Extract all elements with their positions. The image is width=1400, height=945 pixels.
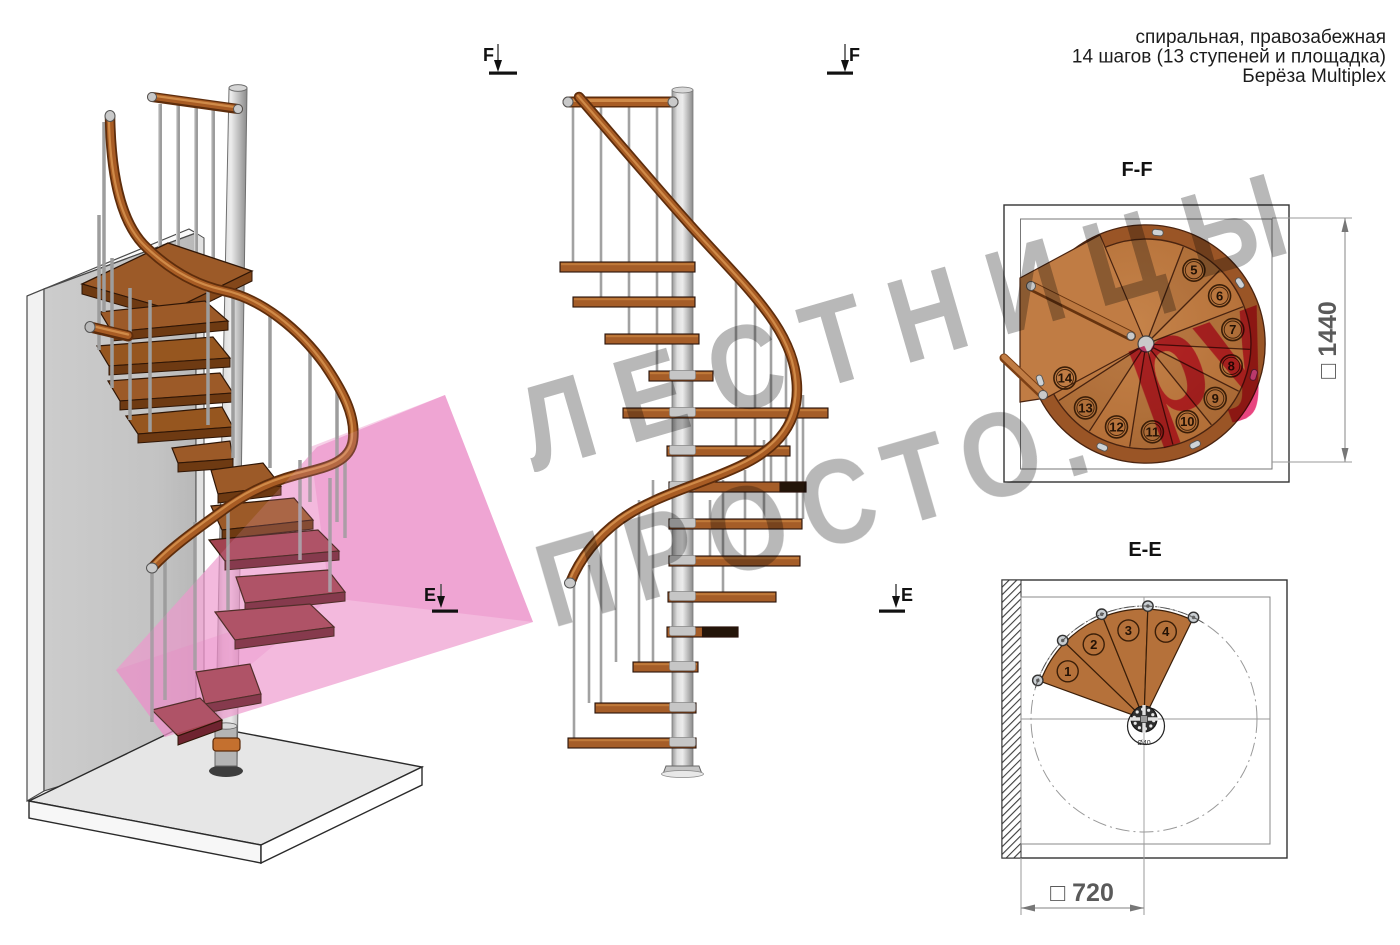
svg-text:E: E <box>901 585 913 605</box>
svg-text:3: 3 <box>1125 623 1132 638</box>
svg-text:1: 1 <box>1064 664 1071 679</box>
svg-text:F: F <box>483 45 494 65</box>
svg-text:спиральная, правозабежная: спиральная, правозабежная <box>1136 27 1386 48</box>
svg-text:□ 1440: □ 1440 <box>1314 301 1342 379</box>
svg-text:E-E: E-E <box>1128 539 1161 561</box>
svg-text:E: E <box>424 585 436 605</box>
svg-text:□ 720: □ 720 <box>1050 879 1114 907</box>
svg-text:12: 12 <box>1109 419 1123 434</box>
svg-text:Берёза Multiplex: Берёза Multiplex <box>1242 66 1386 87</box>
svg-text:14 шагов (13 ступеней и площад: 14 шагов (13 ступеней и площадка) <box>1072 47 1386 68</box>
svg-text:F: F <box>849 45 860 65</box>
svg-text:4: 4 <box>1162 624 1170 639</box>
svg-text:F-F: F-F <box>1121 159 1152 181</box>
svg-text:Ø40: Ø40 <box>1137 740 1150 747</box>
svg-text:2: 2 <box>1090 637 1097 652</box>
